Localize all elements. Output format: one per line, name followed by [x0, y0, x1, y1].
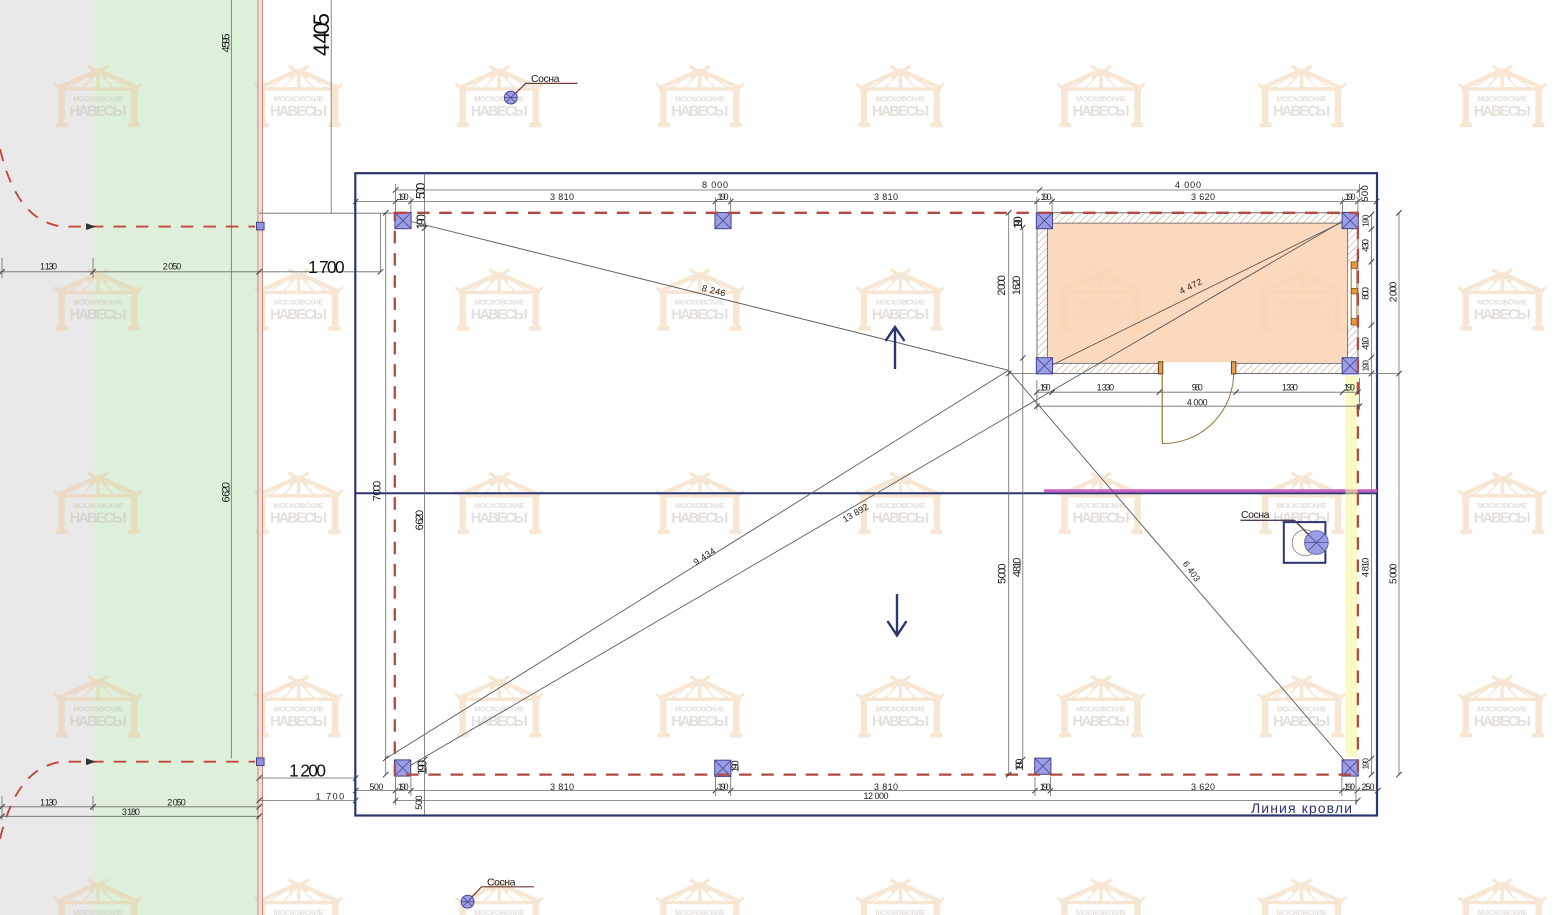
svg-text:3 810: 3 810: [550, 192, 574, 202]
svg-text:190: 190: [1345, 192, 1356, 202]
svg-text:4 000: 4 000: [1187, 397, 1208, 407]
svg-text:190: 190: [1344, 782, 1355, 792]
svg-text:4 405: 4 405: [309, 13, 334, 56]
svg-text:190: 190: [415, 214, 429, 230]
svg-text:3 620: 3 620: [1191, 192, 1215, 202]
svg-text:500: 500: [414, 183, 428, 199]
svg-text:190: 190: [1040, 782, 1051, 792]
svg-text:Сосна: Сосна: [531, 73, 560, 85]
svg-text:8 000: 8 000: [702, 180, 728, 190]
svg-text:6 620: 6 620: [414, 510, 426, 531]
svg-text:190: 190: [718, 192, 729, 202]
svg-text:190: 190: [1040, 383, 1051, 393]
svg-text:1 130: 1 130: [40, 797, 57, 807]
svg-text:500: 500: [414, 795, 424, 809]
svg-text:4 000: 4 000: [1175, 180, 1201, 190]
svg-text:2 050: 2 050: [163, 261, 182, 271]
svg-text:3 180: 3 180: [122, 807, 140, 817]
svg-text:960: 960: [1192, 383, 1203, 393]
svg-text:2 050: 2 050: [167, 797, 186, 807]
svg-text:190: 190: [731, 760, 742, 772]
svg-text:190: 190: [1344, 383, 1355, 393]
svg-text:Сосна: Сосна: [487, 876, 516, 888]
svg-text:6 620: 6 620: [221, 482, 233, 503]
svg-text:190: 190: [398, 192, 409, 202]
svg-text:5 000: 5 000: [1389, 563, 1400, 584]
svg-text:1 200: 1 200: [289, 761, 326, 781]
svg-text:800: 800: [1361, 287, 1372, 300]
svg-text:1 700: 1 700: [316, 791, 345, 801]
svg-text:250: 250: [1362, 782, 1375, 792]
svg-text:190: 190: [1360, 214, 1370, 227]
svg-text:4 810: 4 810: [1012, 558, 1024, 578]
svg-text:1 620: 1 620: [1011, 276, 1023, 296]
svg-text:190: 190: [1014, 759, 1026, 772]
svg-text:Сосна: Сосна: [1241, 509, 1270, 521]
svg-text:190: 190: [1361, 758, 1371, 770]
svg-text:7 000: 7 000: [372, 481, 384, 502]
svg-text:3 810: 3 810: [874, 192, 898, 202]
svg-text:190: 190: [1041, 192, 1052, 202]
svg-text:3 620: 3 620: [1191, 782, 1215, 792]
svg-text:4 595: 4 595: [221, 34, 233, 53]
svg-text:3 810: 3 810: [550, 782, 574, 792]
svg-text:1 330: 1 330: [1282, 383, 1298, 393]
svg-text:2 000: 2 000: [1389, 281, 1400, 302]
svg-text:410: 410: [1361, 337, 1372, 350]
svg-text:1 130: 1 130: [40, 261, 57, 271]
svg-text:190: 190: [718, 782, 729, 792]
svg-text:12 000: 12 000: [864, 791, 889, 801]
svg-text:500: 500: [369, 782, 383, 792]
svg-text:5 000: 5 000: [997, 564, 1009, 585]
svg-text:190: 190: [398, 782, 409, 792]
svg-text:2 000: 2 000: [996, 275, 1008, 296]
svg-text:4 810: 4 810: [1361, 558, 1372, 578]
svg-text:430: 430: [1361, 239, 1372, 252]
svg-text:1 330: 1 330: [1097, 383, 1115, 393]
svg-text:500: 500: [1360, 185, 1371, 202]
svg-text:190: 190: [1361, 360, 1371, 372]
svg-text:Линия кровли: Линия кровли: [1251, 800, 1352, 816]
svg-text:1 700: 1 700: [308, 257, 345, 277]
